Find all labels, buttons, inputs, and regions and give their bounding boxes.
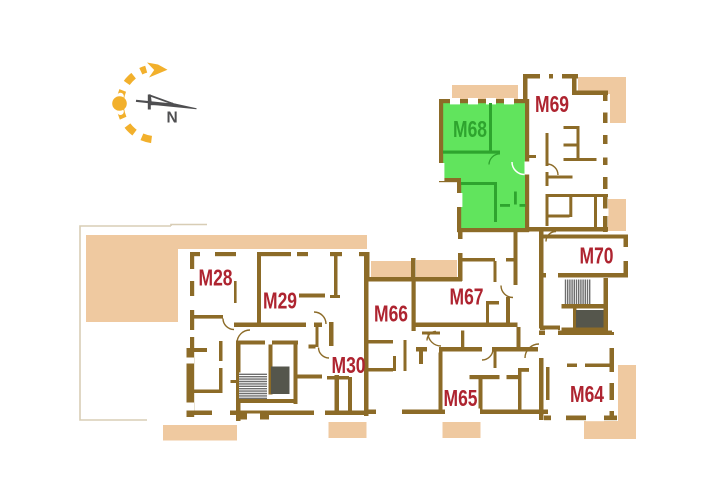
svg-text:M29: M29 [263, 289, 297, 314]
svg-text:M68: M68 [453, 118, 487, 143]
svg-text:M70: M70 [580, 244, 614, 269]
svg-text:M64: M64 [570, 383, 605, 408]
svg-text:M67: M67 [450, 285, 484, 310]
svg-text:M30: M30 [332, 354, 366, 379]
svg-text:N: N [167, 110, 178, 127]
svg-text:M65: M65 [444, 387, 478, 412]
svg-text:M69: M69 [535, 93, 569, 118]
svg-text:M28: M28 [199, 266, 233, 291]
svg-text:M66: M66 [374, 302, 408, 327]
